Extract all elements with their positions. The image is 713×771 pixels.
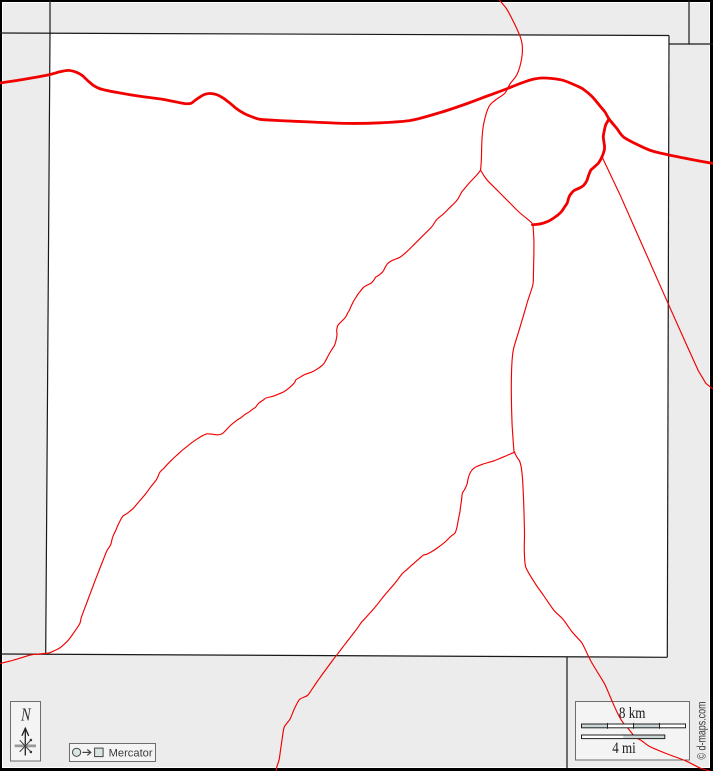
svg-text:© d-maps.com: © d-maps.com xyxy=(695,702,709,760)
svg-text:8 km: 8 km xyxy=(619,705,646,722)
svg-text:Mercator: Mercator xyxy=(109,747,153,759)
svg-text:4 mi: 4 mi xyxy=(612,740,636,757)
svg-text:N: N xyxy=(20,705,32,725)
